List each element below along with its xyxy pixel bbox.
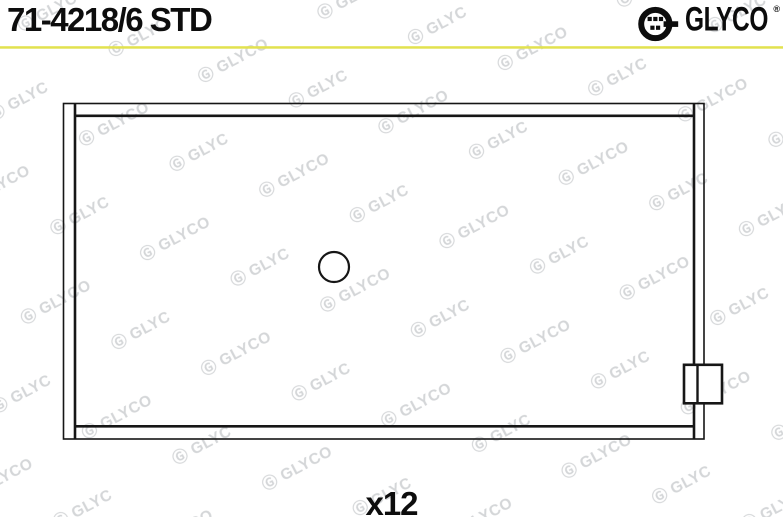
logo-square bbox=[653, 17, 657, 21]
logo-crossbar bbox=[664, 21, 679, 27]
outer-outline bbox=[64, 104, 705, 440]
quantity-label: x12 bbox=[0, 485, 783, 523]
locating-lug bbox=[684, 365, 722, 404]
header-divider bbox=[0, 46, 783, 49]
logo-square bbox=[650, 26, 654, 30]
logo-square bbox=[648, 17, 652, 21]
oil-hole bbox=[319, 252, 349, 282]
header: 71-4218/6 STD GLYCO ® bbox=[0, 0, 783, 46]
brand-name: GLYCO bbox=[685, 0, 768, 40]
glyco-logo-icon bbox=[638, 4, 680, 44]
logo-square bbox=[656, 26, 660, 30]
logo-square bbox=[659, 17, 663, 21]
brand-logo: GLYCO ® bbox=[638, 3, 779, 45]
header-divider-fill bbox=[0, 46, 783, 49]
registered-trademark: ® bbox=[773, 4, 780, 14]
part-number: 71-4218/6 STD bbox=[7, 1, 211, 39]
bearing-shell-drawing bbox=[0, 0, 783, 517]
